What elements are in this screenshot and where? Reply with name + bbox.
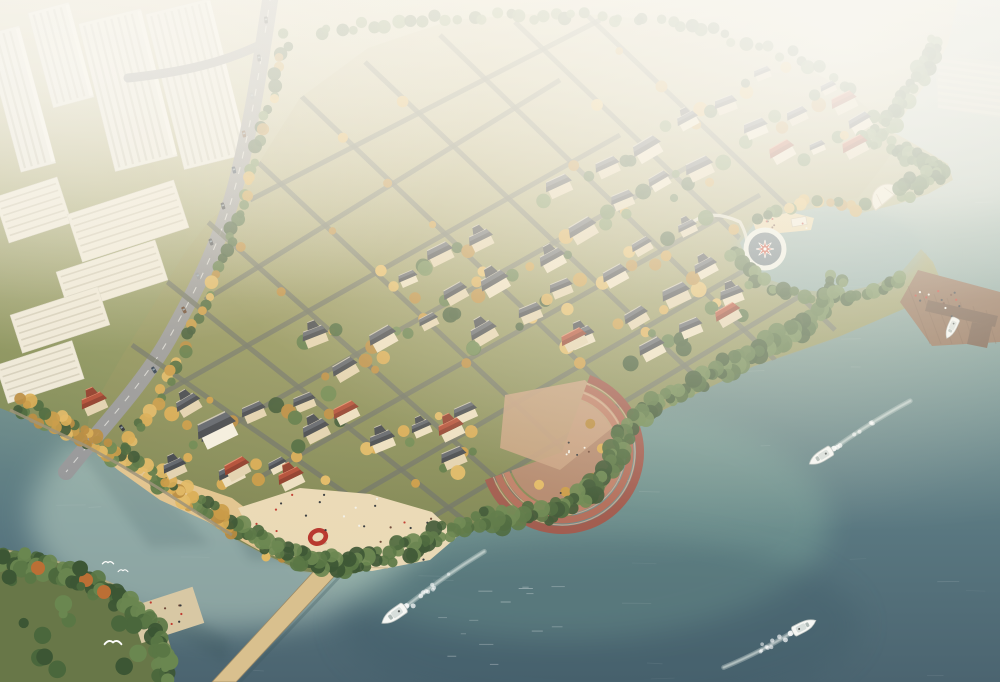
haze xyxy=(0,0,1000,682)
top-left-haze xyxy=(0,0,1000,682)
scene-svg xyxy=(0,0,1000,682)
aerial-rendering-image xyxy=(0,0,1000,682)
